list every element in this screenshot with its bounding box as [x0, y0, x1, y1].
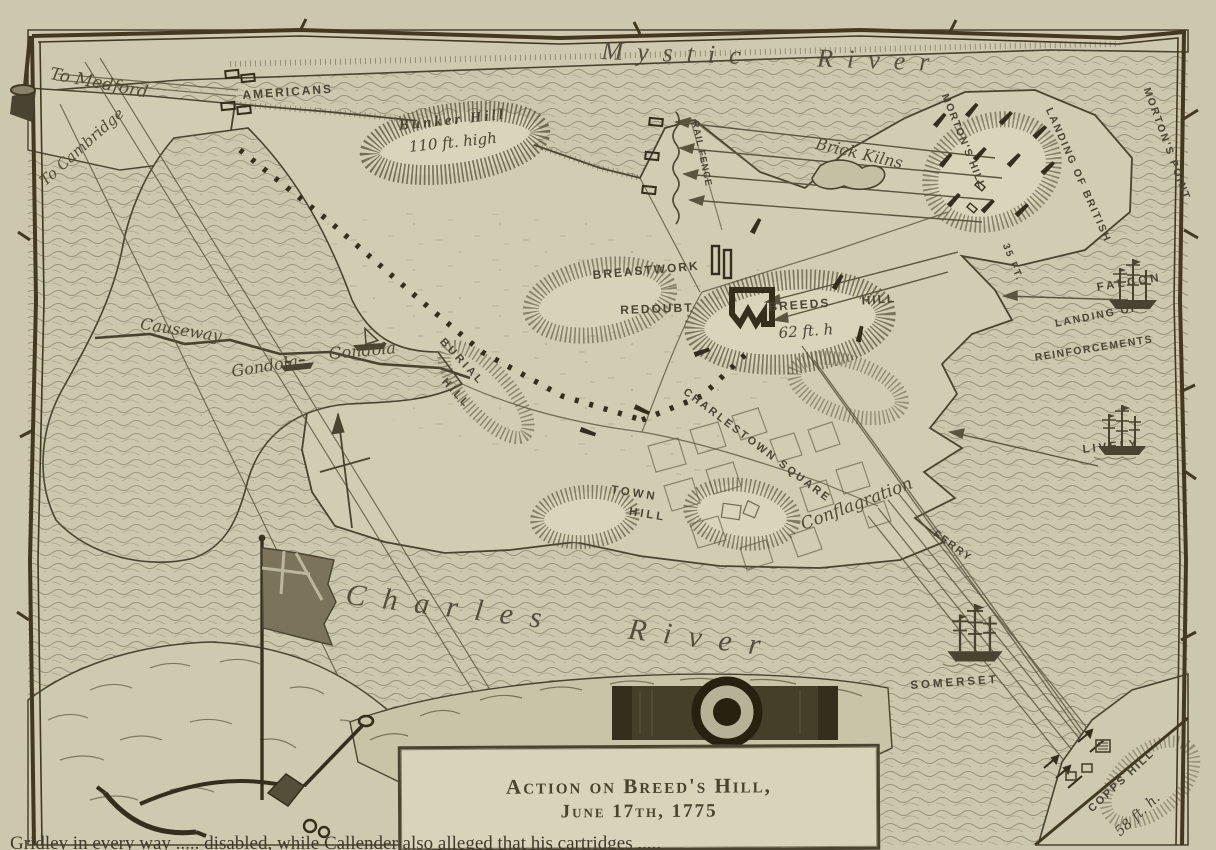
- label-redoubt: Redoubt: [620, 300, 694, 317]
- map-title-line2: June 17th, 1775: [561, 800, 718, 823]
- label-breeds-hill-height: 62 ft. h: [778, 320, 834, 342]
- cannon-icon: [612, 681, 838, 743]
- page-caption-fragment: Gridley in every way ..... disabled, whi…: [10, 833, 1216, 850]
- map-engraving: [0, 0, 1216, 850]
- map-page: To Medford To Cambridge Americans Bunker…: [0, 0, 1216, 850]
- map-title-line1: Action on Breed's Hill,: [506, 773, 772, 799]
